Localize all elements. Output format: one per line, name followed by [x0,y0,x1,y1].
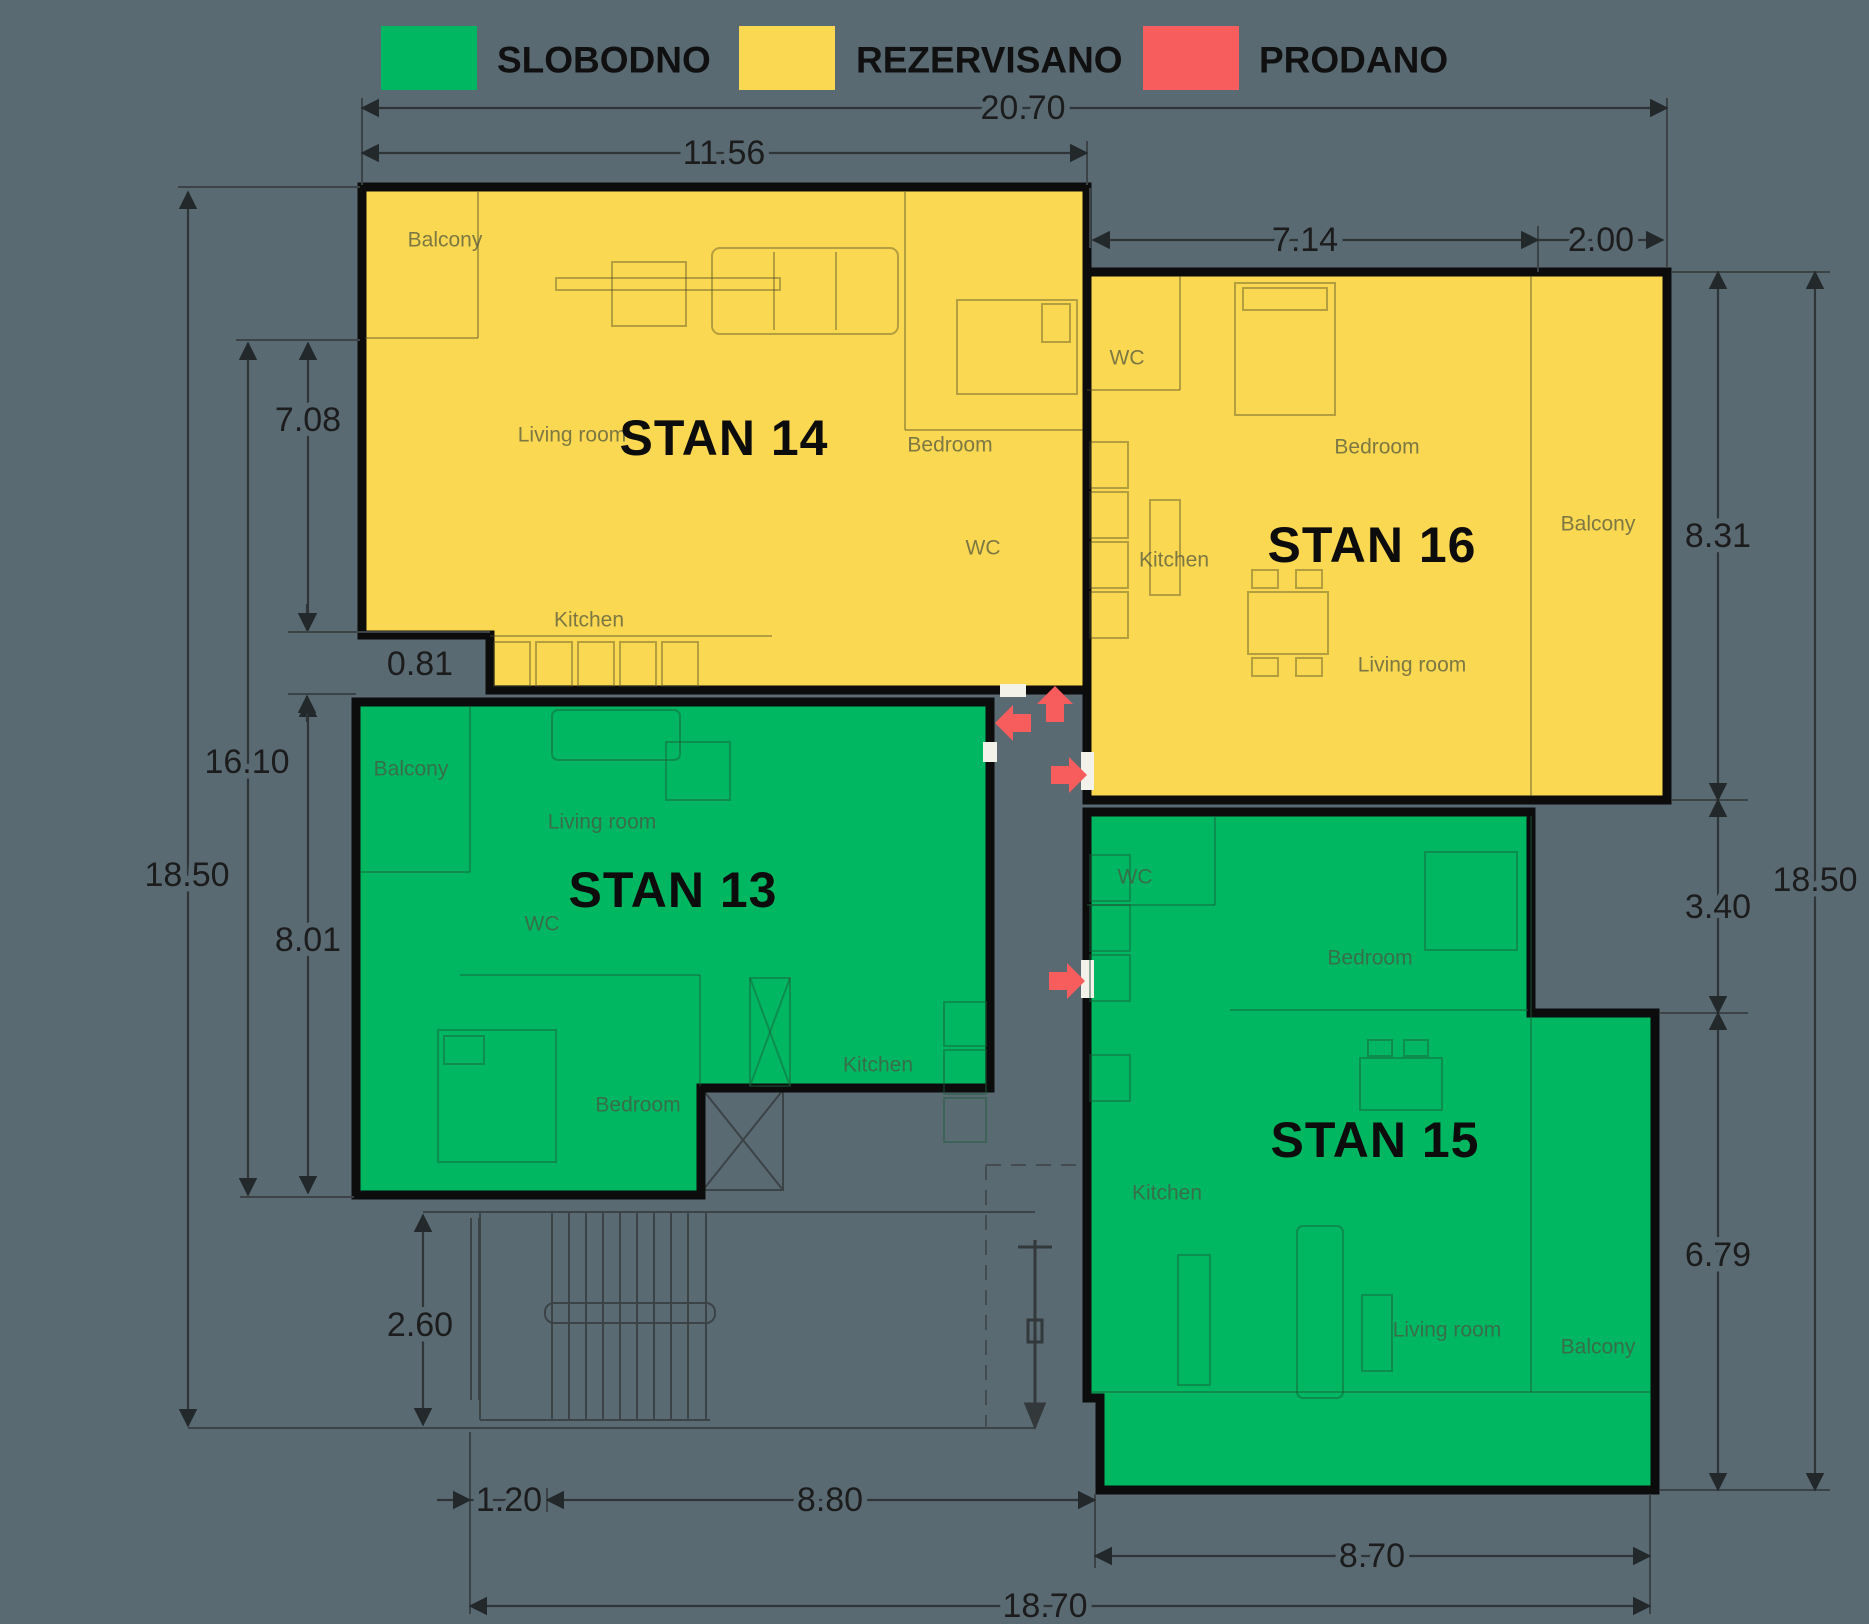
dim-stan16-height: 8.31 [1685,517,1751,555]
dim-left-stairs: 2.60 [387,1306,453,1344]
dim-top-total: 20.70 [980,89,1065,127]
dim-left-total: 18.50 [144,856,229,894]
dim-right-step: 3.40 [1685,888,1751,926]
stan14-balcony-label: Balcony [408,229,483,252]
stan13-title: STAN 13 [569,862,778,918]
stan14-title: STAN 14 [620,410,829,466]
stan16-wc-label: WC [1110,347,1145,370]
dim-left-upper: 7.08 [275,401,341,439]
dim-bottom-entry: 1.20 [476,1481,542,1519]
dim-left-middle: 16.10 [204,743,289,781]
stan15-balcony-label: Balcony [1561,1336,1636,1359]
stan15-bedroom-label: Bedroom [1327,947,1412,970]
dim-left-lower: 8.01 [275,921,341,959]
legend-label-prodano: PRODANO [1259,40,1448,81]
legend-label-rezervisano: REZERVISANO [856,40,1123,81]
floor-plan-svg: 20.70 11.56 7.14 2.00 18.50 16.10 7.08 8… [0,0,1869,1624]
stan16-bedroom-label: Bedroom [1334,436,1419,459]
legend-swatch-rezervisano [739,26,835,90]
dim-right-total: 18.50 [1772,861,1857,899]
floor-plan: 20.70 11.56 7.14 2.00 18.50 16.10 7.08 8… [0,0,1869,1624]
stan15-wc-label: WC [1118,866,1153,889]
dim-top-balcony: 2.00 [1568,221,1634,259]
legend-label-slobodno: SLOBODNO [497,40,711,81]
stan15-title: STAN 15 [1271,1112,1480,1168]
stan16-living-label: Living room [1358,654,1467,677]
dim-left-gap: 0.81 [387,645,453,683]
dim-bottom-stairs: 8.80 [797,1481,863,1519]
stan13-balcony-label: Balcony [374,758,449,781]
stan16-title: STAN 16 [1268,517,1477,573]
stan16-balcony-label: Balcony [1561,513,1636,536]
stan13-kitchen-label: Kitchen [843,1054,913,1077]
stan13-wc-label: WC [525,913,560,936]
stan15-living-label: Living room [1393,1319,1502,1342]
stan14-bedroom-label: Bedroom [907,434,992,457]
stan14-living-label: Living room [518,424,627,447]
dim-stan15-width: 8.70 [1339,1537,1405,1575]
stan15-kitchen-label: Kitchen [1132,1182,1202,1205]
dim-stan14-width: 11.56 [683,134,766,172]
legend-swatch-prodano [1143,26,1239,90]
dim-bottom-total: 18.70 [1002,1587,1087,1624]
dim-stan16-width: 7.14 [1272,221,1338,259]
legend-swatch-slobodno [381,26,477,90]
stan14-kitchen-label: Kitchen [554,609,624,632]
stan13-bedroom-label: Bedroom [595,1094,680,1117]
stan13-living-label: Living room [548,811,657,834]
stan16-kitchen-label: Kitchen [1139,549,1209,572]
dim-stan15-height: 6.79 [1685,1236,1751,1274]
stan14-wc-label: WC [966,537,1001,560]
